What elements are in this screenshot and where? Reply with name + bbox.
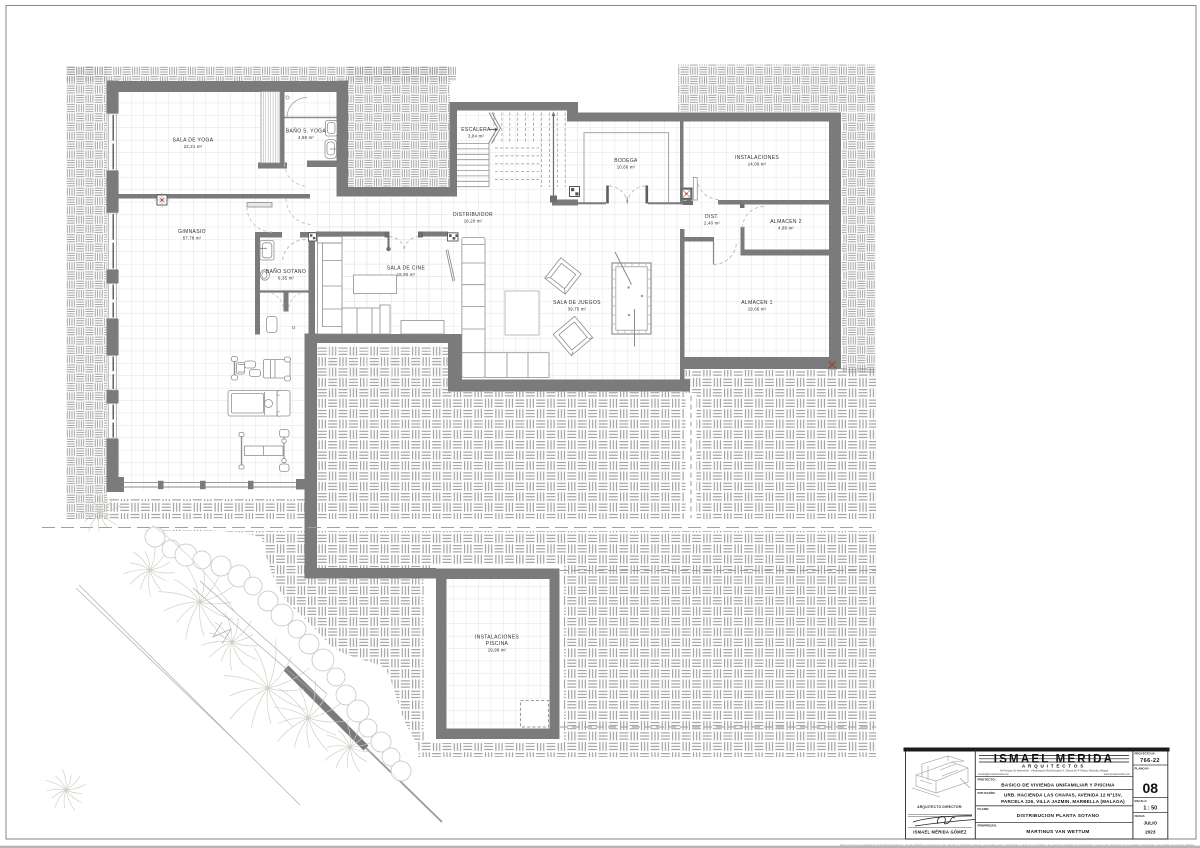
svg-text:ALMACEN 2: ALMACEN 2 [770, 219, 802, 225]
svg-text:PLANO Nº:: PLANO Nº: [1135, 767, 1150, 771]
svg-text:2,40 m²: 2,40 m² [704, 221, 720, 226]
svg-text:3,84 m²: 3,84 m² [468, 134, 484, 139]
svg-text:14,00 m²: 14,00 m² [748, 162, 767, 167]
svg-text:JULIO: JULIO [1144, 821, 1158, 826]
svg-text:39,75 m²: 39,75 m² [568, 307, 587, 312]
svg-text:PROPIEDAD:: PROPIEDAD: [978, 824, 997, 828]
svg-text:16,90 m²: 16,90 m² [397, 272, 416, 277]
svg-text:ARQUITECTOS: ARQUITECTOS [1022, 764, 1086, 769]
svg-text:DISTRIBUCION PLANTA SOTANO: DISTRIBUCION PLANTA SOTANO [1017, 813, 1100, 818]
svg-text:08: 08 [1143, 780, 1159, 796]
svg-text:ALMACEN 1: ALMACEN 1 [741, 300, 773, 306]
svg-text:PISCINA: PISCINA [486, 641, 509, 647]
svg-text:PARCELA 226, VILLA JAZMIN, MAR: PARCELA 226, VILLA JAZMIN, MARBELLA (MAL… [1001, 799, 1125, 804]
svg-text:PROYECTO Nº:: PROYECTO Nº: [1135, 752, 1156, 756]
svg-text:BAÑO S. YOGA: BAÑO S. YOGA [286, 128, 327, 135]
svg-text:BODEGA: BODEGA [614, 158, 638, 164]
svg-text:URB. HACIENDA LAS CHAPAS, AVEN: URB. HACIENDA LAS CHAPAS, AVENIDA 12 Nº1… [1004, 793, 1122, 798]
svg-text:19,98 m²: 19,98 m² [488, 648, 507, 653]
svg-text:ISMAEL MÉRIDA GÓMEZ: ISMAEL MÉRIDA GÓMEZ [913, 830, 967, 835]
svg-text:SALA DE YOGA: SALA DE YOGA [173, 138, 214, 144]
svg-text:INSTALACIONES: INSTALACIONES [475, 635, 520, 641]
svg-text:GIMNASIO: GIMNASIO [178, 229, 206, 235]
svg-text:22,21 m²: 22,21 m² [184, 144, 203, 149]
svg-text:766-22: 766-22 [1140, 758, 1160, 764]
svg-text:57,78 m²: 57,78 m² [183, 236, 202, 241]
svg-text:SITUACIÓN:: SITUACIÓN: [978, 790, 996, 795]
svg-text:PLANO:: PLANO: [978, 807, 990, 811]
svg-text:ESCALA:: ESCALA: [1135, 799, 1148, 803]
svg-text:FECHA:: FECHA: [1135, 814, 1146, 818]
svg-text:estudio@ismaelmerida.com: estudio@ismaelmerida.com [978, 773, 1009, 776]
svg-text:MARTINUS VAN WETTUM: MARTINUS VAN WETTUM [1026, 829, 1089, 834]
svg-text:16,20 m²: 16,20 m² [464, 219, 483, 224]
svg-text:BASICO DE VIVIENDA UNIFAMILIAR: BASICO DE VIVIENDA UNIFAMILIAR Y PISCINA [1001, 783, 1115, 788]
svg-text:6,35 m²: 6,35 m² [278, 276, 294, 281]
svg-text:ESCALERA: ESCALERA [461, 127, 491, 133]
svg-text:4,88 m²: 4,88 m² [298, 135, 314, 140]
svg-text:Este documento es propiedad de: Este documento es propiedad de Ismael Me… [840, 844, 1195, 847]
svg-text:SALA DE CINE: SALA DE CINE [387, 266, 426, 272]
svg-text:10,66 m²: 10,66 m² [617, 165, 636, 170]
svg-text:INSTALACIONES: INSTALACIONES [735, 155, 780, 161]
svg-text:SALA DE JUEGOS: SALA DE JUEGOS [553, 300, 601, 306]
svg-text:Av.Príncipe de Hohenlohe - Urb: Av.Príncipe de Hohenlohe - Urbanización … [1000, 769, 1109, 773]
svg-text:4,86 m²: 4,86 m² [778, 226, 794, 231]
svg-text:ARQUITECTO DIRECTOR:: ARQUITECTO DIRECTOR: [917, 805, 963, 809]
svg-text:PROYECTO:: PROYECTO: [978, 778, 996, 782]
svg-text:1 : 50: 1 : 50 [1143, 806, 1157, 812]
svg-text:2023: 2023 [1145, 830, 1156, 835]
svg-text:19,66 m²: 19,66 m² [748, 307, 767, 312]
svg-text:DISTRIBUIDOR: DISTRIBUIDOR [453, 212, 493, 218]
svg-text:BAÑO SOTANO: BAÑO SOTANO [266, 268, 306, 275]
svg-text:DIST.: DIST. [705, 214, 719, 220]
svg-text:www.ismaelmerida.com: www.ismaelmerida.com [1104, 773, 1130, 776]
